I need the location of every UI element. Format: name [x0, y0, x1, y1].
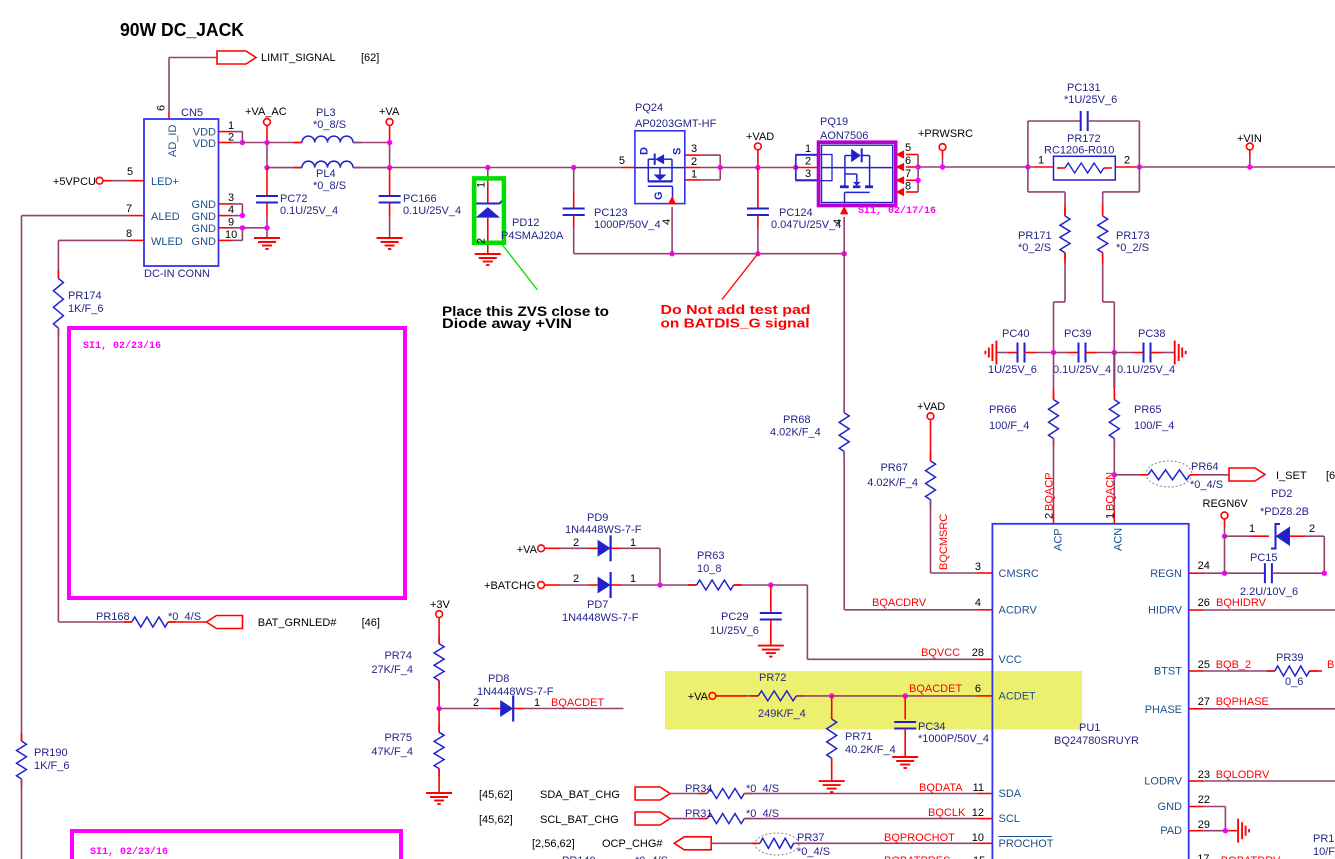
svg-text:BQDATA: BQDATA [919, 782, 963, 794]
svg-text:BQLODRV: BQLODRV [1216, 769, 1270, 781]
svg-text:PR18: PR18 [1313, 833, 1335, 845]
svg-text:AP0203GMT-HF: AP0203GMT-HF [635, 118, 717, 130]
svg-text:+5VPCU: +5VPCU [53, 176, 96, 188]
svg-text:1: 1 [534, 697, 540, 709]
svg-text:+VA: +VA [517, 544, 538, 556]
svg-text:PR63: PR63 [697, 550, 725, 562]
svg-text:PR67: PR67 [880, 462, 908, 474]
svg-text:PL4: PL4 [316, 168, 336, 180]
svg-text:PR172: PR172 [1067, 133, 1101, 145]
svg-text:1: 1 [228, 120, 234, 132]
svg-text:2: 2 [1309, 523, 1315, 535]
svg-text:PD8: PD8 [488, 673, 509, 685]
svg-text:*0_2/S: *0_2/S [1018, 242, 1051, 254]
svg-text:PU1: PU1 [1079, 722, 1100, 734]
svg-text:GND: GND [192, 211, 217, 223]
svg-text:S: S [672, 148, 684, 155]
svg-text:1: 1 [1249, 523, 1255, 535]
svg-text:PR190: PR190 [34, 747, 68, 759]
svg-text:2: 2 [1124, 155, 1130, 167]
svg-text:LIMIT_SIGNAL: LIMIT_SIGNAL [261, 52, 336, 64]
svg-text:GND: GND [1158, 801, 1183, 813]
svg-text:*1U/25V_6: *1U/25V_6 [1064, 94, 1117, 106]
svg-text:4: 4 [832, 219, 844, 225]
svg-text:PL3: PL3 [316, 107, 336, 119]
svg-text:10: 10 [225, 229, 237, 241]
svg-text:BQPROCHOT: BQPROCHOT [884, 832, 955, 844]
svg-text:VCC: VCC [999, 654, 1022, 666]
svg-text:[62]: [62] [1326, 470, 1335, 482]
svg-text:PHASE: PHASE [1145, 704, 1182, 716]
svg-text:2: 2 [473, 697, 479, 709]
svg-text:VDD: VDD [193, 138, 216, 150]
svg-text:249K/F_4: 249K/F_4 [758, 708, 806, 720]
svg-text:1U/25V_6: 1U/25V_6 [988, 364, 1037, 376]
svg-text:PR31: PR31 [685, 808, 713, 820]
svg-text:6: 6 [905, 155, 911, 167]
svg-text:2: 2 [1044, 513, 1056, 519]
svg-text:VDD: VDD [193, 127, 216, 139]
svg-text:LED+: LED+ [151, 176, 179, 188]
svg-text:0.047U/25V_4: 0.047U/25V_4 [771, 219, 841, 231]
svg-text:1: 1 [630, 537, 636, 549]
svg-text:BQACDET: BQACDET [909, 683, 962, 695]
svg-text:PD9: PD9 [587, 512, 608, 524]
svg-text:0.1U/25V_4: 0.1U/25V_4 [280, 205, 338, 217]
svg-text:1: 1 [691, 169, 697, 181]
svg-text:PC15: PC15 [1250, 552, 1278, 564]
svg-text:on BATDIS_G signal: on BATDIS_G signal [661, 316, 810, 331]
svg-text:PC72: PC72 [280, 193, 308, 205]
svg-text:DC-IN CONN: DC-IN CONN [144, 268, 210, 280]
svg-text:10_8: 10_8 [697, 563, 721, 575]
svg-text:BQCLK: BQCLK [928, 807, 966, 819]
svg-text:27K/F_4: 27K/F_4 [371, 664, 413, 676]
svg-text:SDA_BAT_CHG: SDA_BAT_CHG [540, 789, 620, 801]
svg-text:GND: GND [192, 199, 217, 211]
svg-text:PC29: PC29 [721, 611, 749, 623]
svg-text:7: 7 [126, 203, 132, 215]
svg-text:BQACDET: BQACDET [551, 697, 604, 709]
svg-text:6: 6 [156, 105, 168, 111]
svg-text:BQB_2: BQB_2 [1216, 659, 1251, 671]
svg-text:10: 10 [972, 832, 984, 844]
svg-text:BTST: BTST [1154, 666, 1182, 678]
svg-text:*1000P/50V_4: *1000P/50V_4 [918, 733, 989, 745]
svg-text:PR140: PR140 [562, 855, 596, 859]
svg-text:11: 11 [973, 782, 984, 794]
svg-text:PQ24: PQ24 [635, 102, 663, 114]
svg-text:4: 4 [661, 219, 673, 225]
svg-text:PC40: PC40 [1002, 328, 1030, 340]
svg-text:PR168: PR168 [96, 611, 130, 623]
svg-text:PC39: PC39 [1064, 328, 1092, 340]
svg-text:2: 2 [476, 238, 488, 244]
svg-text:28: 28 [972, 647, 984, 659]
svg-text:REGN: REGN [1150, 568, 1182, 580]
svg-text:+VAD: +VAD [746, 131, 774, 143]
svg-text:4: 4 [975, 597, 981, 609]
svg-text:ACP: ACP [1053, 528, 1065, 551]
svg-text:BQBATDRV: BQBATDRV [1221, 855, 1281, 859]
svg-text:SI1, 02/23/16: SI1, 02/23/16 [90, 846, 168, 858]
svg-text:1N4448WS-7-F: 1N4448WS-7-F [565, 524, 642, 536]
svg-text:26: 26 [1198, 597, 1210, 609]
svg-text:8: 8 [126, 228, 132, 240]
svg-text:17: 17 [1197, 853, 1209, 859]
svg-text:+VA: +VA [379, 106, 400, 118]
svg-text:SI1, 02/23/16: SI1, 02/23/16 [83, 340, 161, 352]
svg-text:ACN: ACN [1113, 528, 1125, 551]
svg-text:PC124: PC124 [779, 207, 813, 219]
svg-text:12: 12 [972, 807, 984, 819]
svg-text:1000P/50V_4: 1000P/50V_4 [594, 219, 661, 231]
svg-text:22: 22 [1198, 794, 1210, 806]
svg-text:+VA: +VA [688, 691, 709, 703]
svg-text:SI1, 02/17/16: SI1, 02/17/16 [858, 205, 936, 217]
svg-text:BQACP: BQACP [1044, 472, 1056, 511]
svg-text:*0_8/S: *0_8/S [313, 180, 346, 192]
svg-text:G: G [653, 191, 665, 200]
svg-text:1K/F_6: 1K/F_6 [68, 303, 103, 315]
svg-text:PR39: PR39 [1276, 652, 1304, 664]
svg-text:15: 15 [973, 855, 985, 859]
svg-text:2: 2 [228, 132, 234, 144]
svg-text:PR74: PR74 [384, 650, 412, 662]
svg-text:PR34: PR34 [685, 783, 713, 795]
svg-text:PR72: PR72 [759, 672, 787, 684]
svg-text:*0_4/S: *0_4/S [797, 846, 830, 858]
svg-text:[45,62]: [45,62] [479, 814, 513, 826]
svg-text:PR65: PR65 [1134, 404, 1162, 416]
svg-text:BAT_GRNLED#: BAT_GRNLED# [258, 617, 338, 629]
svg-text:BQCMSRC: BQCMSRC [938, 514, 950, 570]
svg-text:2: 2 [805, 156, 811, 168]
svg-text:BQBATPRES: BQBATPRES [884, 855, 950, 859]
svg-text:CN5: CN5 [181, 107, 203, 119]
svg-text:HIDRV: HIDRV [1148, 605, 1183, 617]
svg-text:5: 5 [619, 155, 625, 167]
svg-text:PD7: PD7 [587, 599, 608, 611]
svg-text:1: 1 [805, 143, 811, 155]
svg-text:AON7506: AON7506 [820, 130, 868, 142]
svg-text:GND: GND [192, 223, 217, 235]
svg-text:2: 2 [691, 156, 697, 168]
svg-text:PR71: PR71 [845, 731, 873, 743]
svg-text:ACDRV: ACDRV [999, 605, 1038, 617]
svg-text:PR64: PR64 [1191, 461, 1219, 473]
svg-text:PD12: PD12 [512, 217, 540, 229]
svg-text:1K/F_6: 1K/F_6 [34, 760, 69, 772]
svg-text:PAD: PAD [1160, 825, 1182, 837]
svg-text:*0_4/S: *0_4/S [1190, 479, 1223, 491]
svg-text:9: 9 [228, 217, 234, 229]
svg-text:BQ24780SRUYR: BQ24780SRUYR [1054, 735, 1139, 747]
svg-text:+VA_AC: +VA_AC [245, 106, 287, 118]
svg-text:[62]: [62] [361, 52, 379, 64]
svg-text:+BATCHG: +BATCHG [484, 580, 535, 592]
svg-text:AD_ID: AD_ID [167, 125, 179, 157]
svg-text:PR37: PR37 [797, 832, 825, 844]
svg-text:OCP_CHG#: OCP_CHG# [602, 838, 663, 850]
svg-text:GND: GND [192, 236, 217, 248]
svg-text:PR171: PR171 [1018, 230, 1052, 242]
svg-text:1: 1 [630, 573, 636, 585]
svg-text:1N4448WS-7-F: 1N4448WS-7-F [562, 612, 639, 624]
svg-text:ACDET: ACDET [999, 691, 1037, 703]
svg-text:[2,56,62]: [2,56,62] [532, 838, 575, 850]
svg-text:PC34: PC34 [918, 721, 946, 733]
svg-text:1U/25V_6: 1U/25V_6 [710, 625, 759, 637]
svg-text:+PRWSRC: +PRWSRC [918, 128, 973, 140]
svg-text:REGN6V: REGN6V [1203, 498, 1249, 510]
svg-text:4: 4 [228, 204, 234, 216]
svg-text:ALED: ALED [151, 211, 180, 223]
svg-text:27: 27 [1198, 696, 1210, 708]
svg-text:WLED: WLED [151, 236, 183, 248]
svg-text:25: 25 [1198, 659, 1210, 671]
svg-text:23: 23 [1198, 769, 1210, 781]
svg-text:Diode away +VIN: Diode away +VIN [442, 316, 572, 331]
svg-text:BQACDRV: BQACDRV [872, 597, 927, 609]
svg-text:LODRV: LODRV [1144, 776, 1182, 788]
svg-text:2: 2 [573, 573, 579, 585]
svg-text:6: 6 [975, 683, 981, 695]
svg-text:SCL_BAT_CHG: SCL_BAT_CHG [540, 814, 619, 826]
svg-text:SCL: SCL [999, 813, 1020, 825]
svg-text:BQVCC: BQVCC [921, 647, 960, 659]
svg-text:PC166: PC166 [403, 193, 437, 205]
svg-text:5: 5 [905, 142, 911, 154]
svg-text:7: 7 [905, 168, 911, 180]
svg-text:PC131: PC131 [1067, 82, 1101, 94]
svg-text:100/F_4: 100/F_4 [1134, 420, 1174, 432]
svg-text:10/F_: 10/F_ [1313, 846, 1335, 858]
svg-text:PR75: PR75 [384, 732, 412, 744]
svg-text:+VAD: +VAD [917, 401, 945, 413]
svg-text:0.1U/25V_4: 0.1U/25V_4 [1053, 364, 1111, 376]
svg-text:1N4448WS-7-F: 1N4448WS-7-F [477, 686, 554, 698]
svg-text:3: 3 [975, 561, 981, 573]
svg-text:40.2K/F_4: 40.2K/F_4 [845, 744, 896, 756]
svg-text:PROCHOT: PROCHOT [999, 838, 1054, 850]
svg-text:[46]: [46] [362, 617, 380, 629]
svg-text:[45,62]: [45,62] [479, 789, 513, 801]
svg-text:3: 3 [805, 168, 811, 180]
svg-text:PC38: PC38 [1138, 328, 1166, 340]
svg-text:+VIN: +VIN [1237, 133, 1262, 145]
svg-text:BQACN: BQACN [1105, 472, 1117, 511]
svg-text:*0_2/S: *0_2/S [1116, 242, 1149, 254]
svg-text:0.1U/25V_4: 0.1U/25V_4 [403, 205, 461, 217]
svg-text:*PDZ8.2B: *PDZ8.2B [1260, 506, 1309, 518]
svg-text:RC1206-R010: RC1206-R010 [1044, 145, 1114, 157]
svg-text:PR173: PR173 [1116, 230, 1150, 242]
svg-text:3: 3 [228, 192, 234, 204]
svg-text:P4SMAJ20A: P4SMAJ20A [501, 230, 564, 242]
svg-text:1: 1 [476, 182, 488, 188]
svg-text:47K/F_4: 47K/F_4 [371, 746, 413, 758]
svg-text:PR66: PR66 [989, 404, 1017, 416]
svg-text:2: 2 [573, 537, 579, 549]
svg-text:29: 29 [1198, 819, 1210, 831]
svg-text:24: 24 [1198, 560, 1210, 572]
svg-text:CMSRC: CMSRC [999, 568, 1039, 580]
svg-text:+3V: +3V [430, 599, 451, 611]
svg-text:0_6: 0_6 [1285, 676, 1303, 688]
svg-text:I_SET: I_SET [1276, 470, 1307, 482]
svg-text:PD2: PD2 [1271, 488, 1292, 500]
svg-text:PC123: PC123 [594, 207, 628, 219]
svg-text:3: 3 [691, 143, 697, 155]
svg-text:PR68: PR68 [783, 414, 811, 426]
svg-text:BQPHASE: BQPHASE [1216, 696, 1269, 708]
svg-text:PR174: PR174 [68, 290, 102, 302]
svg-text:BQB_1: BQB_1 [1327, 659, 1335, 671]
svg-text:BQHIDRV: BQHIDRV [1216, 597, 1267, 609]
svg-text:SDA: SDA [999, 788, 1022, 800]
svg-text:100/F_4: 100/F_4 [989, 420, 1029, 432]
svg-text:PQ19: PQ19 [820, 116, 848, 128]
svg-text:*0_4/S: *0_4/S [635, 855, 668, 859]
svg-text:1: 1 [1105, 513, 1117, 519]
svg-text:4.02K/F_4: 4.02K/F_4 [867, 477, 918, 489]
svg-text:5: 5 [127, 166, 133, 178]
svg-text:4.02K/F_4: 4.02K/F_4 [770, 427, 821, 439]
svg-text:90W DC_JACK: 90W DC_JACK [120, 20, 244, 40]
svg-text:0.1U/25V_4: 0.1U/25V_4 [1117, 364, 1175, 376]
svg-text:8: 8 [905, 181, 911, 193]
svg-text:D: D [639, 147, 651, 155]
svg-text:*0_8/S: *0_8/S [313, 119, 346, 131]
